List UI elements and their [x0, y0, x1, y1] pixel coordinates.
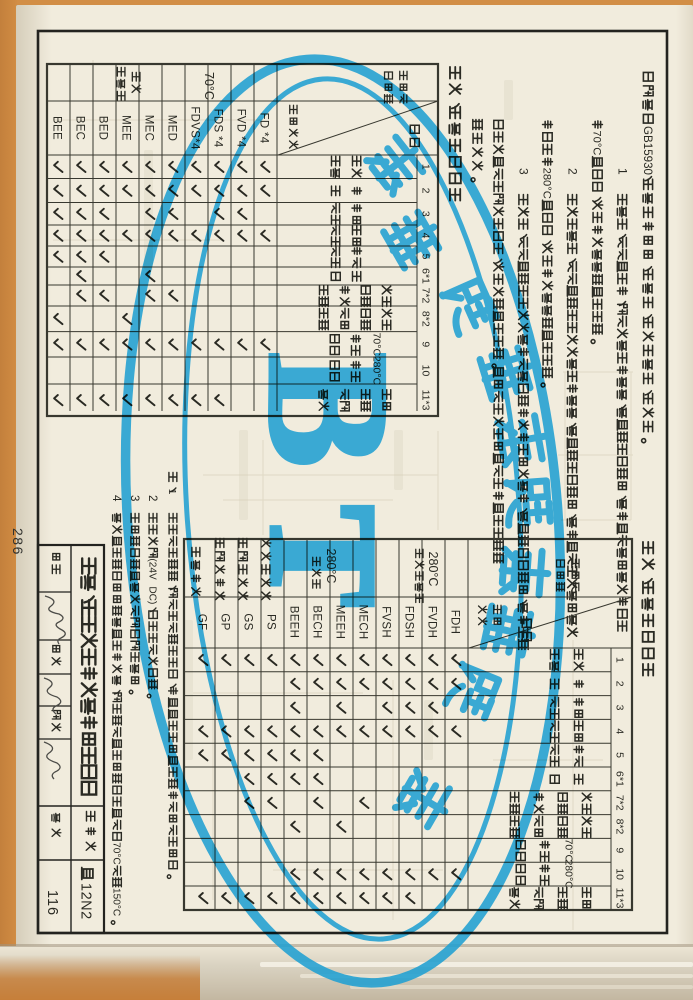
- svg-text:280°C: 280°C: [426, 552, 440, 587]
- svg-text:9: 9: [614, 847, 626, 853]
- svg-text:2: 2: [614, 681, 626, 687]
- svg-text:70°C: 70°C: [590, 130, 602, 155]
- svg-text:1: 1: [616, 168, 630, 175]
- svg-text:70°C: 70°C: [110, 842, 121, 865]
- svg-text:280°C: 280°C: [540, 168, 552, 199]
- svg-text:5: 5: [614, 752, 626, 758]
- svg-text:FDH: FDH: [449, 610, 461, 635]
- svg-text:116: 116: [44, 890, 60, 916]
- svg-text:8*2: 8*2: [420, 311, 432, 327]
- svg-text:GB15930: GB15930: [641, 126, 654, 175]
- svg-text:6*1: 6*1: [420, 268, 432, 284]
- svg-text:MEC: MEC: [143, 115, 155, 141]
- svg-text:PS: PS: [265, 614, 277, 630]
- svg-text:B: B: [233, 353, 423, 468]
- svg-text:GS: GS: [242, 613, 254, 630]
- svg-text:BEE: BEE: [51, 116, 63, 140]
- svg-text:FVSH: FVSH: [380, 606, 392, 638]
- svg-text:6*1: 6*1: [614, 771, 626, 787]
- svg-text:150°C: 150°C: [110, 888, 121, 916]
- svg-text:10: 10: [614, 868, 626, 880]
- svg-text:9: 9: [420, 341, 432, 347]
- svg-text:FDSH: FDSH: [403, 606, 415, 639]
- svg-text:BEEH: BEEH: [288, 606, 300, 639]
- svg-text:70°C: 70°C: [202, 72, 216, 100]
- svg-text:MECH: MECH: [357, 604, 369, 639]
- svg-text:(24V: (24V: [146, 558, 157, 580]
- svg-text:GP: GP: [219, 613, 231, 630]
- svg-text:11*3: 11*3: [614, 888, 626, 909]
- svg-text:280°C: 280°C: [563, 859, 575, 889]
- svg-text:BED: BED: [97, 116, 109, 141]
- svg-text:286: 286: [10, 528, 26, 556]
- svg-text:FVDH: FVDH: [426, 606, 438, 639]
- svg-text:T: T: [240, 506, 406, 606]
- svg-text:2: 2: [146, 495, 158, 501]
- svg-text:MEEH: MEEH: [334, 605, 346, 639]
- svg-text:12N2: 12N2: [78, 883, 94, 920]
- svg-text:7*2: 7*2: [614, 795, 626, 811]
- svg-text:8*2: 8*2: [614, 819, 626, 835]
- svg-text:2: 2: [420, 188, 432, 194]
- svg-text:BEC: BEC: [74, 116, 86, 141]
- svg-text:4: 4: [614, 728, 626, 734]
- svg-text:3: 3: [614, 705, 626, 711]
- svg-text:7*2: 7*2: [420, 288, 432, 304]
- svg-text:MEE: MEE: [120, 115, 132, 141]
- svg-text:1: 1: [614, 657, 626, 663]
- svg-text:2: 2: [566, 168, 580, 175]
- svg-text:MED: MED: [166, 115, 178, 141]
- svg-text:4: 4: [110, 495, 122, 502]
- svg-text:1: 1: [166, 489, 177, 495]
- svg-text:DC): DC): [146, 586, 157, 604]
- svg-text:3: 3: [517, 168, 531, 175]
- svg-text:BECH: BECH: [311, 605, 323, 638]
